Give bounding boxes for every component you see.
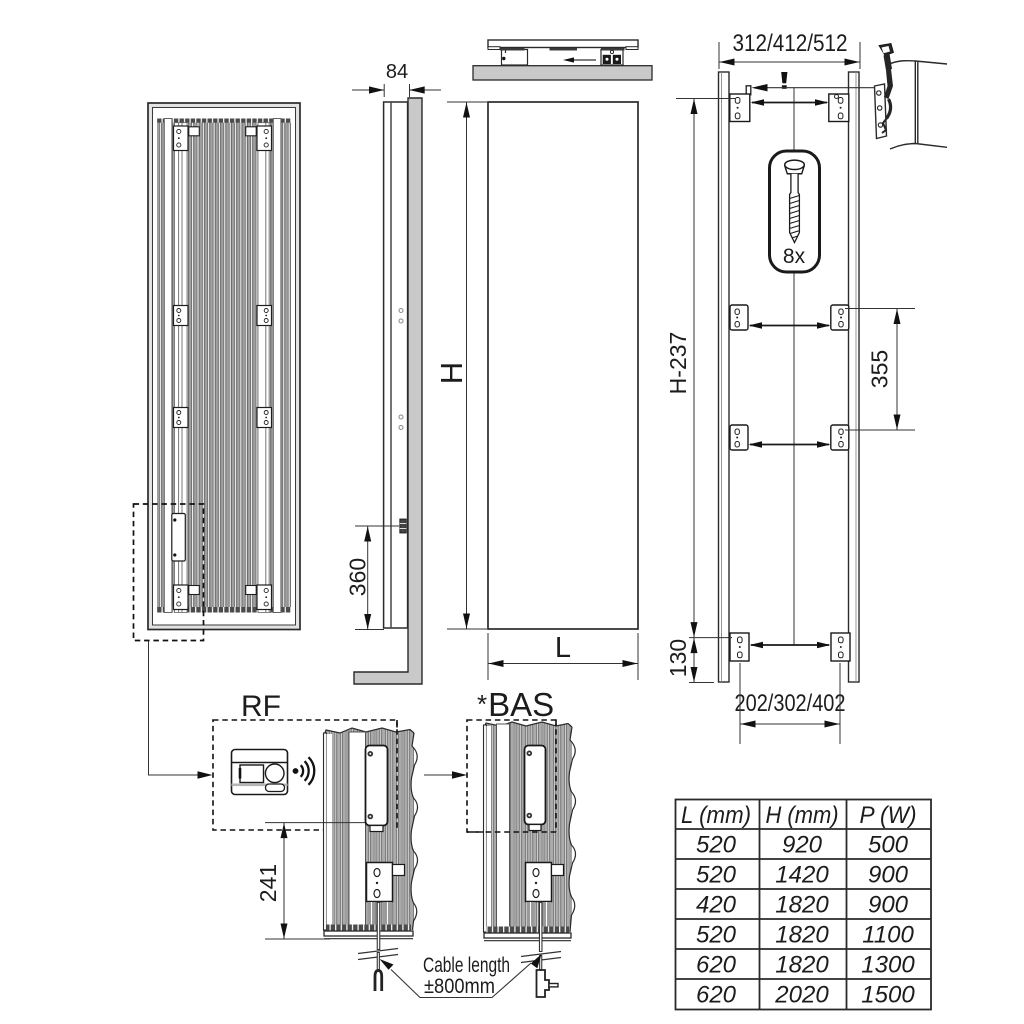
svg-text:620: 620 (696, 982, 737, 1009)
svg-text:241: 241 (255, 864, 281, 902)
svg-text:*BAS: *BAS (477, 686, 554, 723)
svg-text:8x: 8x (783, 245, 806, 268)
svg-text:900: 900 (868, 862, 909, 889)
svg-text:1420: 1420 (775, 862, 829, 889)
svg-text:355: 355 (867, 350, 893, 388)
svg-text:520: 520 (696, 832, 737, 859)
svg-text:202/302/402: 202/302/402 (735, 690, 846, 717)
svg-text:520: 520 (696, 922, 737, 949)
svg-text:RF: RF (241, 690, 281, 723)
svg-text:L: L (555, 632, 571, 664)
svg-text:920: 920 (782, 832, 823, 859)
svg-text:130: 130 (665, 639, 691, 677)
svg-text:1820: 1820 (775, 952, 829, 979)
svg-text:H (mm): H (mm) (766, 802, 839, 829)
svg-text:1820: 1820 (775, 892, 829, 919)
svg-text:±800mm: ±800mm (424, 975, 495, 998)
svg-text:520: 520 (696, 862, 737, 889)
svg-text:2020: 2020 (774, 982, 829, 1009)
svg-text:620: 620 (696, 952, 737, 979)
svg-text:900: 900 (868, 892, 909, 919)
svg-text:1500: 1500 (861, 982, 915, 1009)
svg-text:P (W): P (W) (860, 802, 917, 829)
svg-text:84: 84 (386, 61, 408, 83)
svg-text:360: 360 (345, 558, 371, 596)
svg-text:500: 500 (868, 832, 909, 859)
svg-text:1820: 1820 (775, 922, 829, 949)
svg-text:L (mm): L (mm) (681, 802, 751, 829)
svg-text:1300: 1300 (861, 952, 915, 979)
svg-text:H: H (434, 362, 469, 384)
svg-text:1100: 1100 (862, 922, 914, 949)
svg-text:H-237: H-237 (665, 332, 691, 395)
svg-text:Cable length: Cable length (423, 954, 510, 977)
svg-text:312/412/512: 312/412/512 (733, 30, 848, 57)
svg-text:420: 420 (696, 892, 737, 919)
